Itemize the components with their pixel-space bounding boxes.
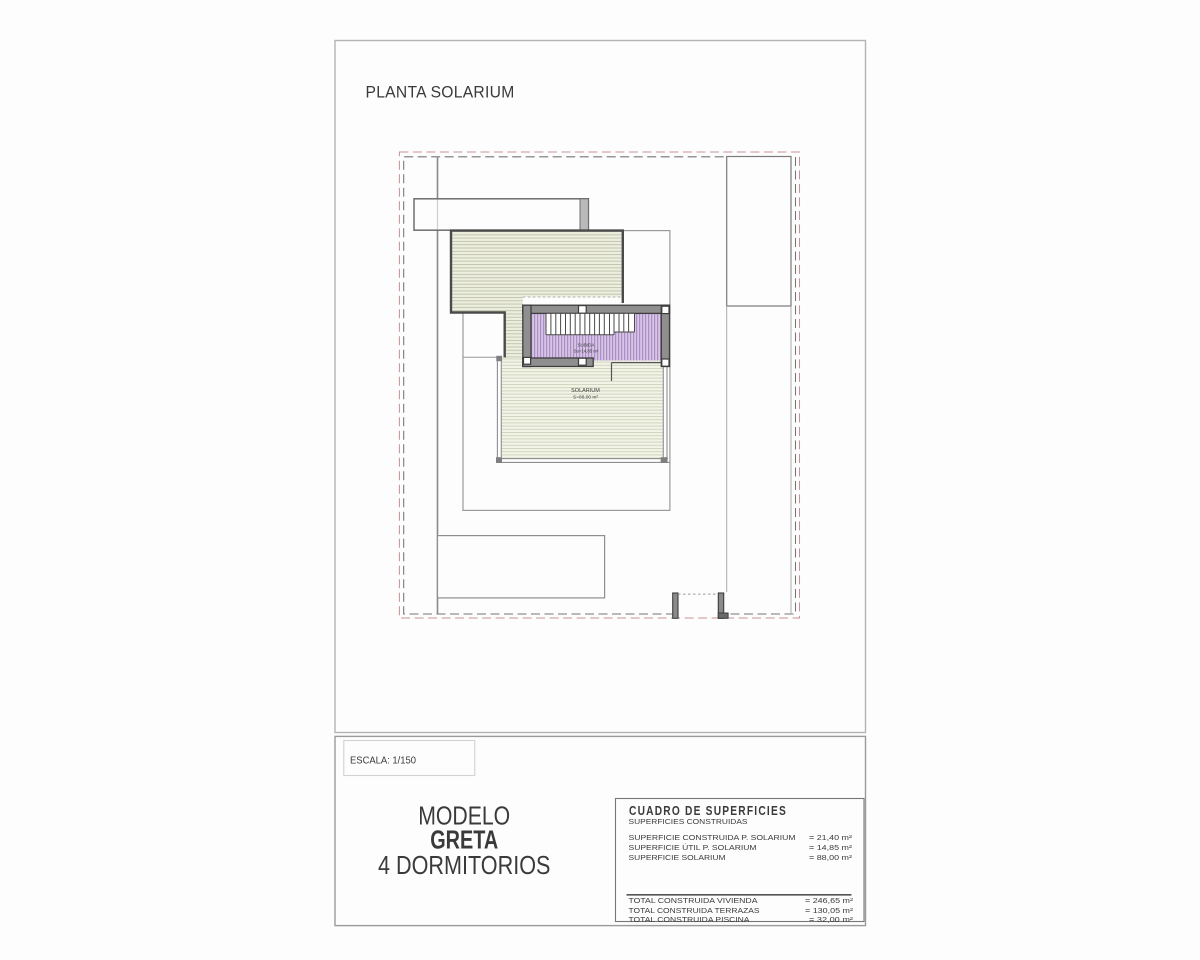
svg-text:TOTAL CONSTRUIDA VIVIENDA: TOTAL CONSTRUIDA VIVIENDA bbox=[629, 898, 758, 905]
svg-text:= 88,00 m²: = 88,00 m² bbox=[809, 855, 853, 862]
svg-text:SUPERFICIE CONSTRUIDA P. SOLAR: SUPERFICIE CONSTRUIDA P. SOLARIUM bbox=[629, 835, 796, 842]
svg-text:SUPERFICIES CONSTRUIDAS: SUPERFICIES CONSTRUIDAS bbox=[629, 819, 748, 826]
svg-text:= 14,85 m²: = 14,85 m² bbox=[809, 845, 853, 852]
svg-text:SUPERFICIE SOLARIUM: SUPERFICIE SOLARIUM bbox=[629, 855, 726, 862]
svg-text:CUADRO DE SUPERFICIES: CUADRO DE SUPERFICIES bbox=[629, 804, 787, 818]
svg-text:SUBIDA: SUBIDA bbox=[577, 343, 595, 348]
svg-text:= 246,65 m²: = 246,65 m² bbox=[805, 898, 854, 905]
svg-text:SOLARIUM: SOLARIUM bbox=[571, 388, 600, 394]
svg-text:= 32,00 m²: = 32,00 m² bbox=[809, 917, 854, 924]
svg-text:ESCALA: 1/150: ESCALA: 1/150 bbox=[350, 755, 416, 766]
svg-text:TOTAL CONSTRUIDA PISCINA: TOTAL CONSTRUIDA PISCINA bbox=[629, 917, 750, 924]
svg-text:Su=14,85 m²: Su=14,85 m² bbox=[574, 349, 599, 354]
svg-text:S=88,00 m²: S=88,00 m² bbox=[573, 395, 598, 401]
svg-text:= 130,05 m²: = 130,05 m² bbox=[805, 908, 854, 915]
svg-text:4 DORMITORIOS: 4 DORMITORIOS bbox=[378, 850, 550, 880]
svg-text:TOTAL CONSTRUIDA TERRAZAS: TOTAL CONSTRUIDA TERRAZAS bbox=[629, 908, 760, 915]
svg-text:SUPERFICIE ÚTIL P. SOLARIUM: SUPERFICIE ÚTIL P. SOLARIUM bbox=[629, 843, 757, 852]
svg-text:= 21,40 m²: = 21,40 m² bbox=[809, 835, 853, 842]
svg-text:PLANTA SOLARIUM: PLANTA SOLARIUM bbox=[366, 83, 515, 102]
